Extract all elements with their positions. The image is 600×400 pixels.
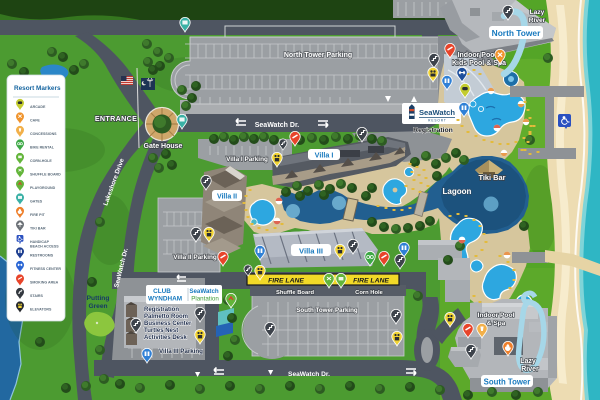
svg-text:GATES: GATES [30,200,43,204]
svg-text:ENTRANCE: ENTRANCE [95,114,137,123]
svg-text:CAFE: CAFE [30,119,40,123]
svg-text:WYNDHAM: WYNDHAM [148,296,182,303]
svg-text:Indoor Pool: Indoor Pool [478,312,515,319]
svg-text:Green: Green [88,303,107,310]
svg-text:Putting: Putting [87,295,110,302]
svg-text:STAIRS: STAIRS [30,294,44,298]
svg-text:River: River [521,366,539,373]
svg-text:CLUB: CLUB [153,288,171,295]
svg-text:HANDICAP: HANDICAP [30,240,50,244]
svg-text:Resort Markers: Resort Markers [14,85,61,92]
svg-text:PLAYGROUND: PLAYGROUND [30,186,56,190]
svg-text:South Tower: South Tower [484,378,531,387]
svg-text:Tiki Bar: Tiki Bar [479,173,506,182]
svg-text:North Tower Parking: North Tower Parking [284,52,352,59]
svg-text:& Spa: & Spa [487,320,506,327]
svg-text:Shuffle Board: Shuffle Board [276,290,314,296]
svg-text:CONCESSIONS: CONCESSIONS [30,132,57,136]
svg-text:FITNESS CENTER: FITNESS CENTER [30,267,61,271]
svg-text:Registration: Registration [144,307,179,313]
svg-text:Corn Hole: Corn Hole [355,290,383,296]
svg-text:River: River [529,17,546,24]
svg-text:Villa I Parking: Villa I Parking [226,156,268,163]
svg-text:SMOKING AREA: SMOKING AREA [30,281,59,285]
svg-text:Business Center: Business Center [144,321,192,327]
svg-text:Indoor Pool,: Indoor Pool, [458,52,499,59]
svg-text:TIKI BAR: TIKI BAR [30,227,46,231]
svg-text:Lazy: Lazy [530,9,545,16]
svg-text:North Tower: North Tower [492,28,541,38]
svg-text:SeaWatch: SeaWatch [419,108,455,117]
svg-text:SHUFFLE BOARD: SHUFFLE BOARD [30,173,61,177]
svg-text:Palmetto Room: Palmetto Room [144,314,188,320]
svg-text:Activities Desk: Activities Desk [144,335,187,341]
svg-text:ELEVATORS: ELEVATORS [30,308,52,312]
svg-text:Gate House: Gate House [144,143,183,150]
svg-text:Villa III Parking: Villa III Parking [159,348,203,355]
svg-text:Villa III: Villa III [299,247,323,256]
svg-text:FIRE LANE: FIRE LANE [353,278,389,285]
svg-text:Villa II Parking: Villa II Parking [173,254,217,261]
svg-text:FIRE PIT: FIRE PIT [30,213,46,217]
svg-text:Lagoon: Lagoon [443,187,472,196]
svg-text:RESTROOMS: RESTROOMS [30,254,54,258]
svg-text:South Tower Parking: South Tower Parking [296,307,358,314]
svg-text:BIKE RENTAL: BIKE RENTAL [30,146,55,150]
svg-text:BEACH ACCESS: BEACH ACCESS [30,245,59,249]
svg-text:R E S O R T: R E S O R T [428,119,446,123]
svg-text:SeaWatch: SeaWatch [189,288,219,295]
svg-text:SeaWatch Dr.: SeaWatch Dr. [288,371,330,378]
svg-text:Villa II: Villa II [217,194,237,201]
svg-text:Plantation: Plantation [191,296,219,303]
svg-text:SeaWatch Dr.: SeaWatch Dr. [255,122,300,129]
svg-text:CORN-HOLE: CORN-HOLE [30,159,52,163]
svg-text:ARCADE: ARCADE [30,105,46,109]
svg-text:Lazy: Lazy [520,358,536,365]
svg-text:Turtles Nest: Turtles Nest [144,328,178,334]
svg-text:Villa I: Villa I [315,151,334,160]
svg-text:Registration: Registration [413,127,453,134]
svg-text:FIRE LANE: FIRE LANE [268,278,304,285]
